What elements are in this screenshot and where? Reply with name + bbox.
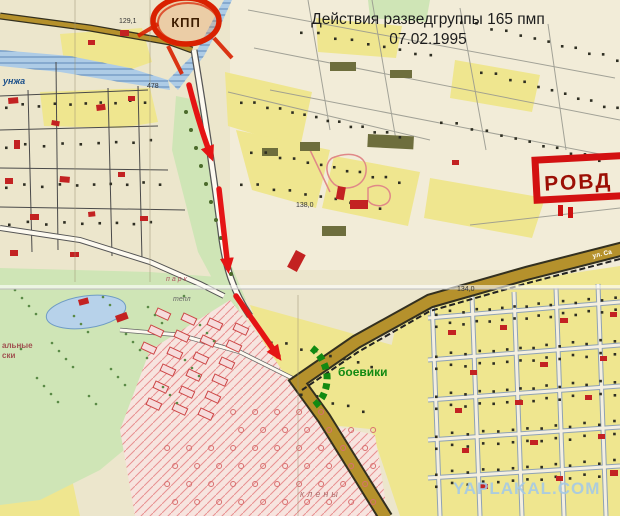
militants-label: боевики: [338, 365, 388, 379]
rovd-label: РОВД: [544, 169, 613, 196]
label-fragment-a: альные: [2, 341, 33, 350]
river-number-label: 478: [147, 83, 159, 90]
greenhouse-label: тепл: [173, 296, 191, 303]
label-fragment-b: ски: [2, 351, 15, 360]
title-line-2: 07.02.1995: [389, 31, 467, 48]
elevation-label-c: 134,0: [457, 286, 475, 293]
park-label: парк: [166, 276, 189, 283]
elevation-label-a: 129,1: [119, 18, 137, 25]
map-canvas: унжа 478 129,1 138,0 134,0 парк тепл кле…: [0, 0, 620, 516]
maples-label: клены: [300, 489, 341, 499]
river-name-label: унжа: [2, 76, 25, 86]
watermark: YAPLAKAL.COM: [453, 479, 600, 498]
elevation-label-b: 138,0: [296, 202, 314, 209]
title-line-1: Действия разведгруппы 165 пмп: [311, 11, 544, 28]
military-map-image: унжа 478 129,1 138,0 134,0 парк тепл кле…: [0, 0, 620, 516]
scan-seam: [0, 285, 620, 289]
checkpoint-label: КПП: [171, 15, 201, 30]
